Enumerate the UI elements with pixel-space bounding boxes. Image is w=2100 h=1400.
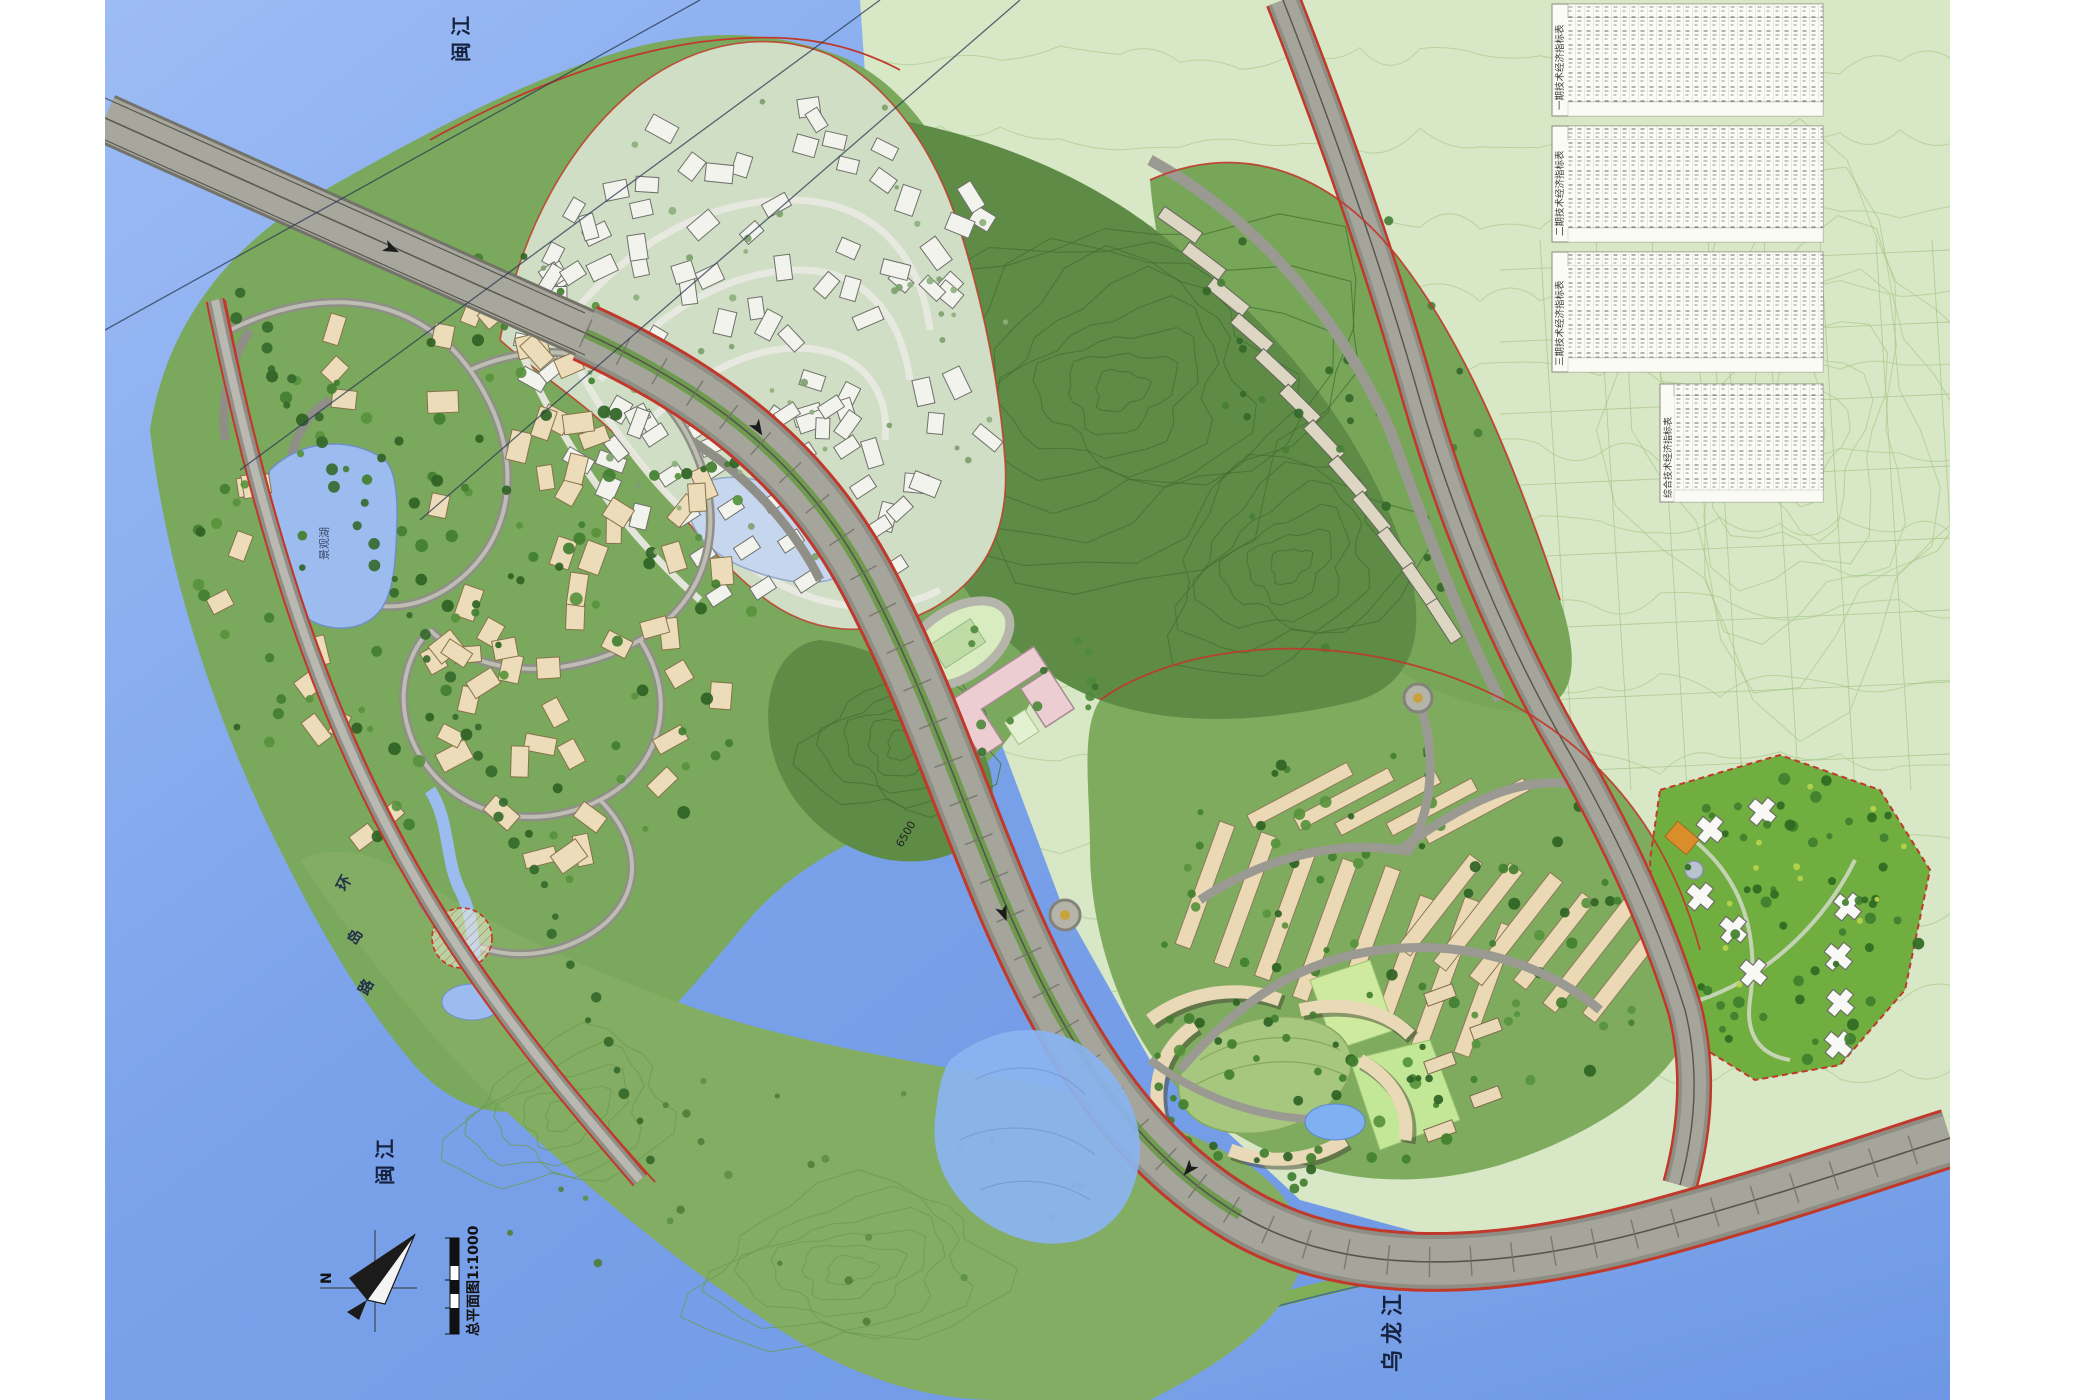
- indicator-table-2: 二期技术经济指标表: [1552, 126, 1823, 242]
- site-plan-sheet: 闽江 闽江 乌龙江 环 岛 路 景观湖 6500 N 总平面图1:1000: [0, 0, 2100, 1400]
- north-letter: N: [319, 1272, 335, 1284]
- label-wulongjiang: 乌龙江: [1380, 1288, 1406, 1372]
- roundabout-center: [1413, 693, 1423, 703]
- site-plan-map: 闽江 闽江 乌龙江 环 岛 路 景观湖 6500 N 总平面图1:1000: [0, 0, 2100, 1400]
- indicator-table-4: 综合技术经济指标表: [1660, 384, 1823, 502]
- table-2-title: 二期技术经济指标表: [1554, 150, 1566, 236]
- indicator-table-3: 三期技术经济指标表: [1552, 252, 1823, 372]
- label-minjiang-bottom: 闽江: [373, 1133, 397, 1185]
- table-1-title: 一期技术经济指标表: [1554, 24, 1566, 110]
- table-4-title: 综合技术经济指标表: [1662, 417, 1674, 498]
- label-minjiang-top: 闽江: [449, 10, 473, 62]
- table-3-title: 三期技术经济指标表: [1554, 280, 1566, 366]
- scale-caption: 总平面图1:1000: [465, 1225, 482, 1336]
- indicator-table-1: 一期技术经济指标表: [1552, 4, 1823, 116]
- label-lake: 景观湖: [318, 527, 331, 560]
- roundabout-2-center: [1060, 910, 1070, 920]
- south-pond: [1305, 1104, 1365, 1140]
